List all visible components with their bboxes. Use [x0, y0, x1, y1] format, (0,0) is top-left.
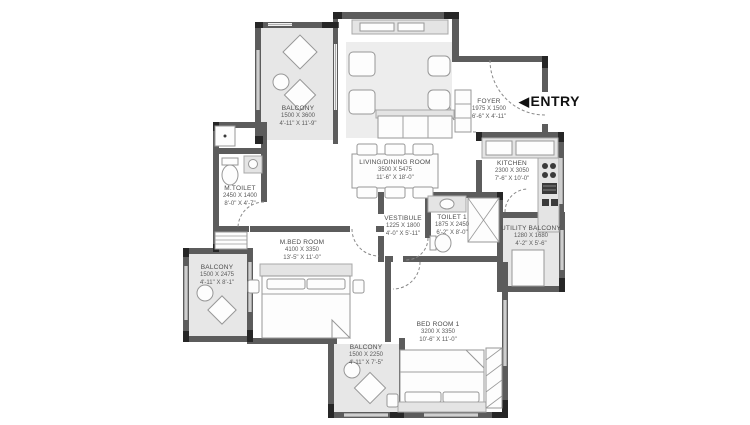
room-dims-mm: 1500 X 2250 [349, 352, 383, 360]
entry-label: ◀ ENTRY [519, 93, 580, 109]
room-dims-mm: 1500 X 3600 [279, 113, 316, 121]
room-dims-mm: 3500 X 5475 [359, 167, 431, 175]
room-dims-ft: 8'-0" X 4'-7" [223, 201, 257, 209]
entry-text: ENTRY [531, 93, 580, 109]
room-dims-mm: 1225 X 1800 [384, 223, 422, 231]
room-name: FOYER [472, 98, 506, 106]
room-label-vestibule: VESTIBULE 1225 X 1800 4'-0" X 5'-11" [384, 215, 422, 239]
room-dims-mm: 3200 X 3350 [417, 329, 460, 337]
room-dims-ft: 6'-2" X 8'-0" [435, 230, 469, 238]
room-label-kitchen: KITCHEN 2300 X 3050 7'-6" X 10'-0" [495, 160, 530, 184]
room-dims-ft: 4'-0" X 5'-11" [384, 231, 422, 239]
room-name: BALCONY [349, 344, 383, 352]
bed-room-1-furniture [387, 348, 502, 412]
floor-plan: BALCONY 1500 X 3600 4'-11" X 11'-9" LIVI… [0, 0, 750, 425]
room-name: BALCONY [200, 264, 234, 272]
m-toilet-fixtures [215, 126, 262, 185]
room-name: BED ROOM 1 [417, 321, 460, 329]
shaft-box [215, 232, 247, 249]
room-name: LIVING/DINING ROOM [359, 159, 431, 167]
room-dims-mm: 2300 X 3050 [495, 168, 530, 176]
room-dims-ft: 7'-6" X 10'-0" [495, 176, 530, 184]
room-dims-ft: 4'-11" X 8'-1" [200, 280, 234, 288]
room-label-bed-room-1: BED ROOM 1 3200 X 3350 10'-6" X 11'-0" [417, 321, 460, 345]
room-label-foyer: FOYER 1975 X 1500 6'-6" X 4'-11" [472, 98, 506, 122]
room-dims-ft: 10'-6" X 11'-0" [417, 337, 460, 345]
room-name: VESTIBULE [384, 215, 422, 223]
room-dims-ft: 4'-2" X 5'-6" [501, 241, 561, 249]
room-label-m-bed-room: M.BED ROOM 4100 X 3350 13'-5" X 11'-0" [280, 239, 325, 263]
room-name: M.BED ROOM [280, 239, 325, 247]
m-bed-furniture [248, 264, 364, 338]
room-name: M.TOILET [223, 185, 257, 193]
room-dims-ft: 4'-11" X 11'-9" [279, 121, 316, 129]
room-dims-ft: 13'-5" X 11'-0" [280, 255, 325, 263]
room-dims-mm: 1975 X 1500 [472, 106, 506, 114]
room-label-balcony-bottom: BALCONY 1500 X 2250 4'-11" X 7'-5" [349, 344, 383, 368]
room-name: TOILET 1 [435, 214, 469, 222]
room-label-utility-balcony: UTILITY BALCONY 1280 X 1680 4'-2" X 5'-6… [501, 225, 561, 249]
room-label-toilet-1: TOILET 1 1875 X 2450 6'-2" X 8'-0" [435, 214, 469, 238]
room-name: KITCHEN [495, 160, 530, 168]
room-label-balcony-left: BALCONY 1500 X 2475 4'-11" X 8'-1" [200, 264, 234, 288]
entry-arrow-icon: ◀ [519, 95, 530, 108]
room-dims-mm: 1500 X 2475 [200, 272, 234, 280]
room-dims-ft: 6'-6" X 4'-11" [472, 114, 506, 122]
room-dims-mm: 1280 X 1680 [501, 233, 561, 241]
utility-washer [512, 250, 544, 286]
room-label-balcony-top-left: BALCONY 1500 X 3600 4'-11" X 11'-9" [279, 105, 316, 129]
room-dims-mm: 4100 X 3350 [280, 247, 325, 255]
room-label-living-dining: LIVING/DINING ROOM 3500 X 5475 11'-6" X … [359, 159, 431, 183]
room-name: BALCONY [279, 105, 316, 113]
foyer-cabinet [455, 90, 471, 132]
room-dims-ft: 4'-11" X 7'-5" [349, 360, 383, 368]
room-dims-mm: 1875 X 2450 [435, 222, 469, 230]
room-label-m-toilet: M.TOILET 2450 X 1400 8'-0" X 4'-7" [223, 185, 257, 209]
room-dims-ft: 11'-6" X 18'-0" [359, 175, 431, 183]
room-name: UTILITY BALCONY [501, 225, 561, 233]
room-dims-mm: 2450 X 1400 [223, 193, 257, 201]
